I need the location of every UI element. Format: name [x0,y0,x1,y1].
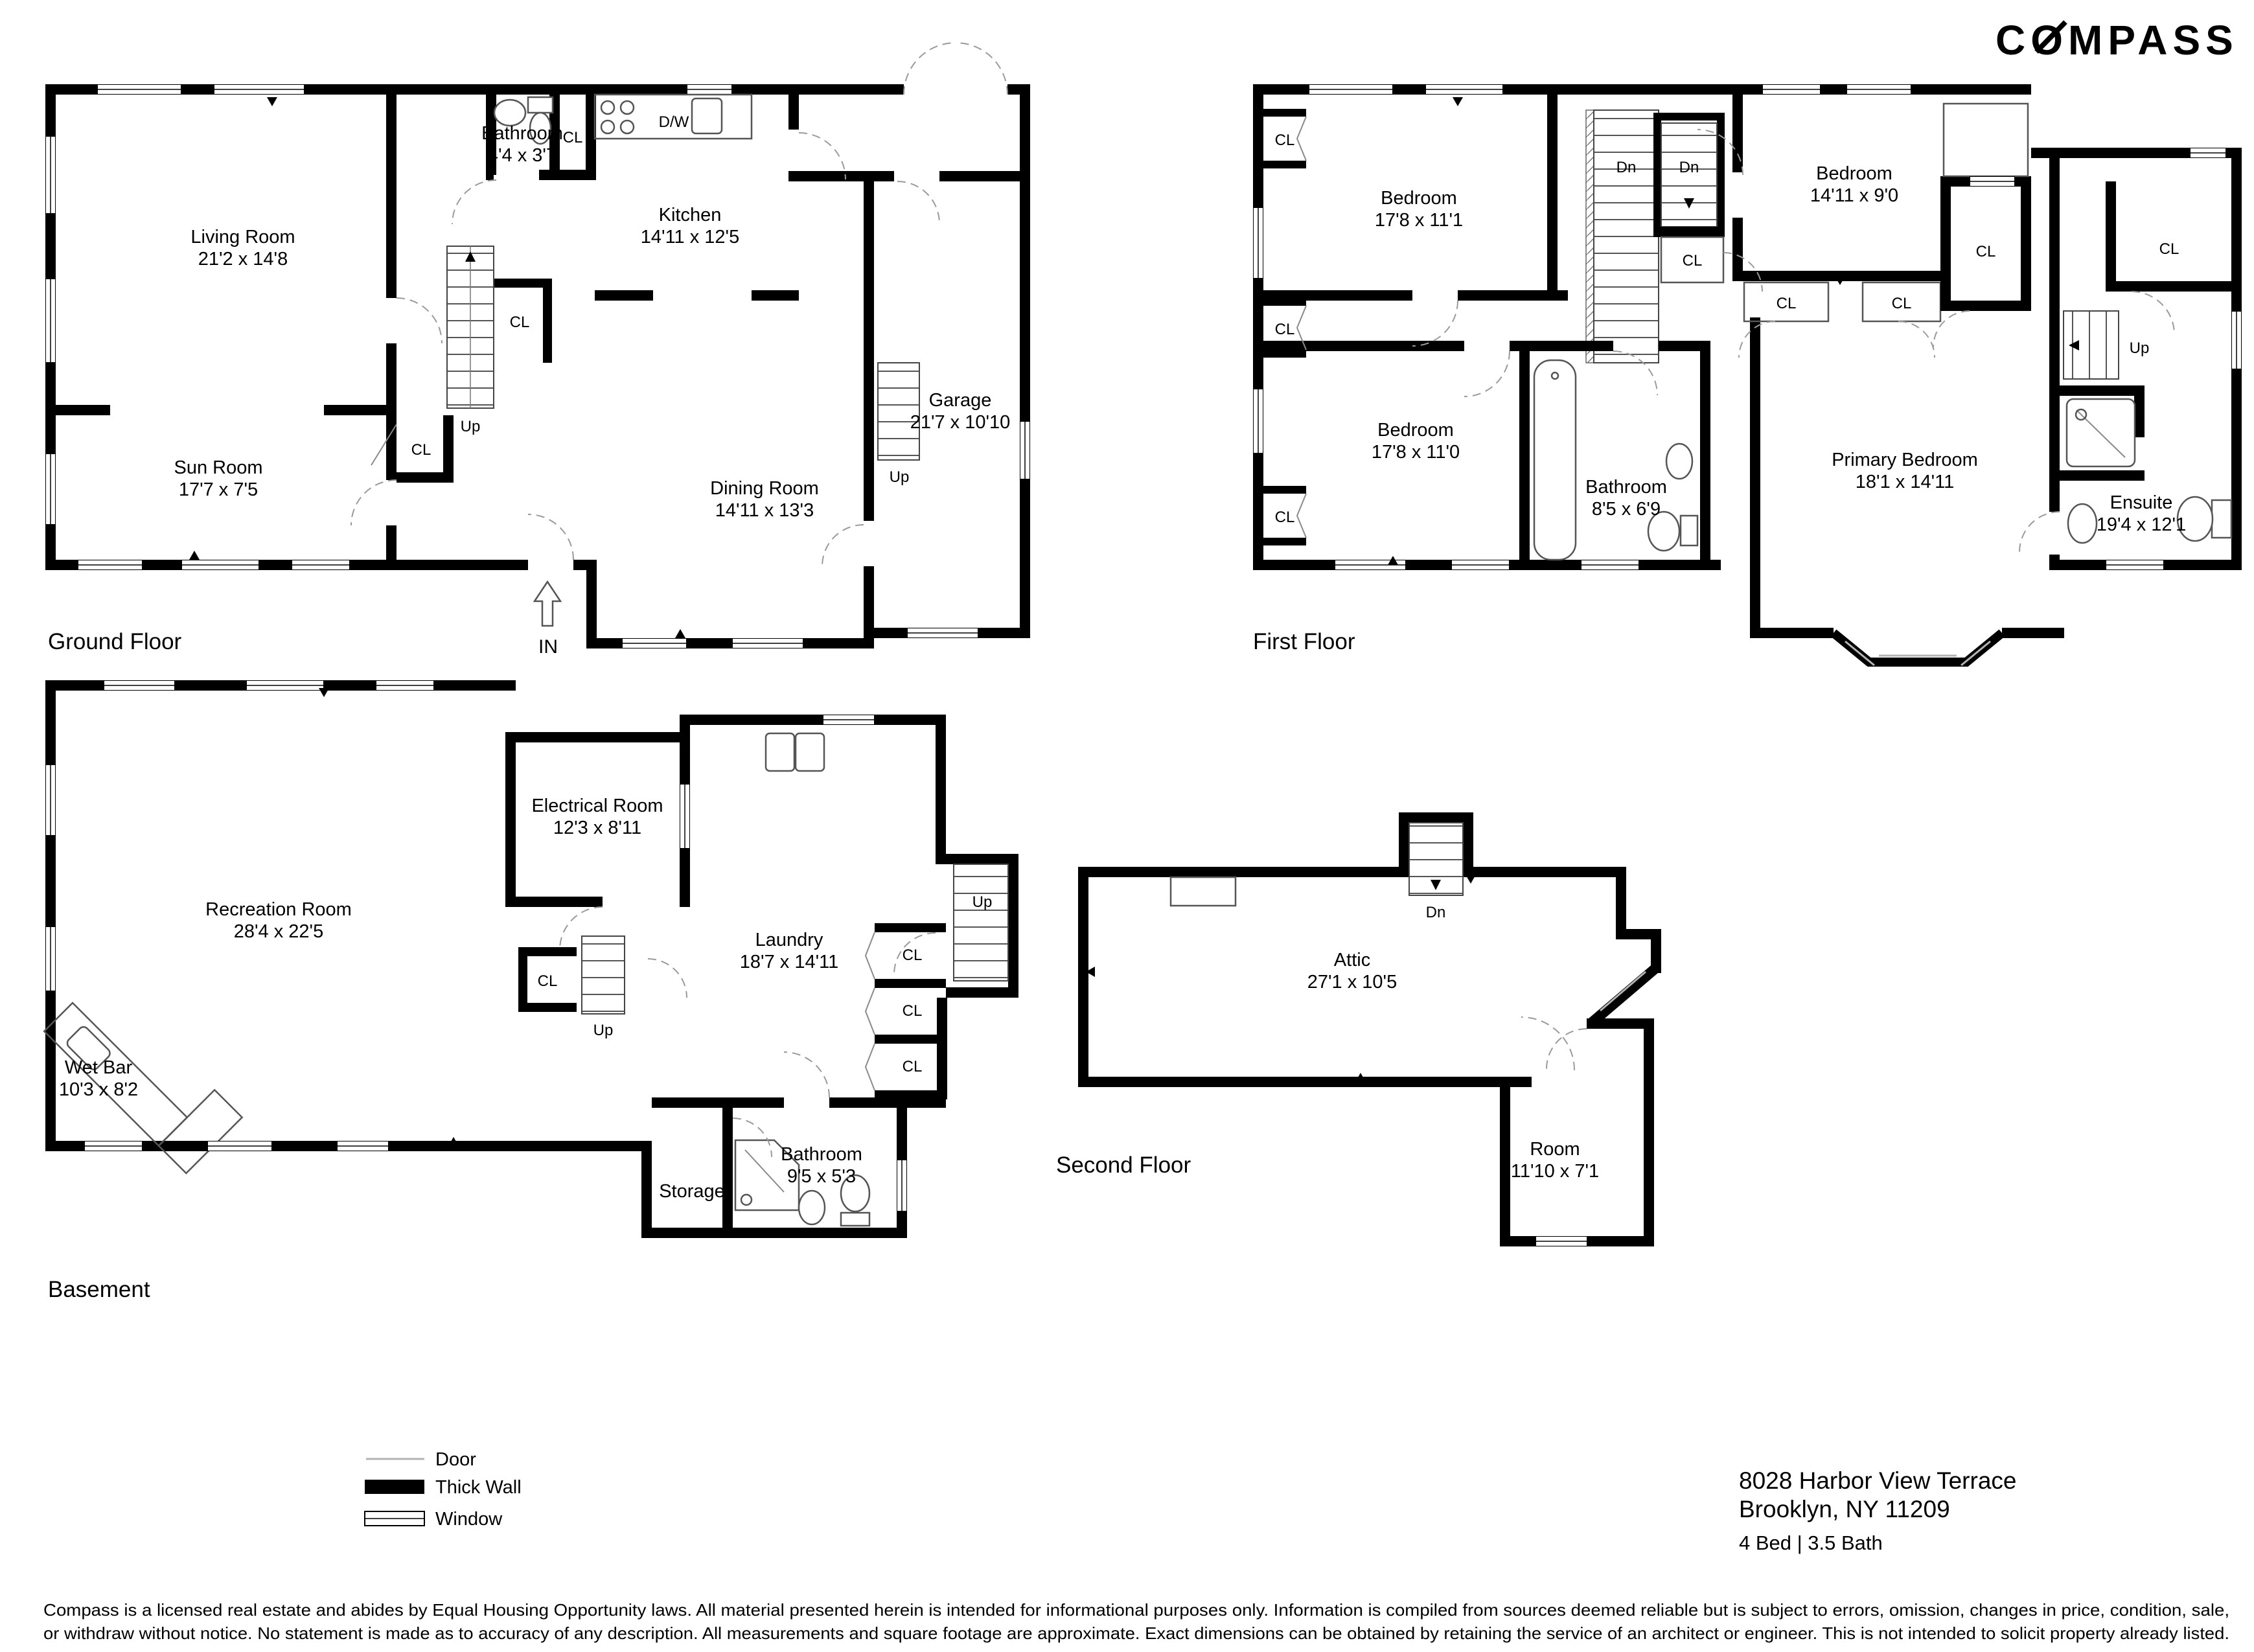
ground-floor-plan: Living Room 21'2 x 14'8 Sun Room 17'7 x … [45,43,1030,658]
window [1253,389,1263,453]
wall [386,84,397,298]
wall [586,570,597,648]
window [337,1141,389,1151]
wall [1539,341,1613,351]
entry-in-label: IN [538,636,558,658]
room-dims: 12'3 x 8'11 [553,818,641,838]
direction-arrow [189,551,200,560]
bay-window-wall [1834,633,2002,662]
bay-window [1961,641,1990,665]
wall [1940,181,1951,311]
floor-plan-page: COMPASS [0,0,2254,1652]
laundry-sink-icon [766,733,794,771]
closet-label: CL [1275,321,1295,338]
toilet-tank-icon [2212,500,2231,538]
door-arc [528,514,573,560]
window [680,784,690,849]
wall [573,560,597,570]
window [78,560,143,570]
wall [752,290,799,301]
window [97,84,181,95]
direction-arrow [1466,875,1476,884]
room-name: Room [1530,1139,1580,1160]
wall [1750,317,1760,638]
first-floor-plan: Bedroom 17'8 x 11'1 Bedroom 14'11 x 9'0 … [1253,84,2242,665]
dormer-window-bay [1171,877,1236,906]
door-arc [1412,301,1458,346]
wall [518,947,527,1012]
wall [1659,341,1710,351]
wall [680,715,946,725]
window [823,715,875,725]
wall [864,566,874,638]
stairs-down-label: Dn [1616,159,1637,176]
wall [875,979,946,988]
closet-label: CL [1683,252,1703,270]
wall [1547,95,1558,301]
window [897,1160,907,1211]
chimney-bay [1944,104,2028,176]
wall [505,897,603,907]
compass-logo: COMPASS [1995,17,2238,63]
room-dims: 11'10 x 7'1 [1511,1161,1599,1182]
room-dims: 17'8 x 11'1 [1375,210,1463,231]
wall [1263,538,1306,545]
room-name: Sun Room [174,457,262,478]
window [45,926,56,991]
floor-title: First Floor [1253,629,1355,654]
wall [937,998,947,1099]
address-line2: Brooklyn, NY 11209 [1739,1496,1950,1522]
room-name: Primary Bedroom [1832,450,1978,470]
room-dims: 17'7 x 7'5 [179,479,258,500]
room-dims: 8'5 x 6'9 [1592,499,1661,520]
window [207,1141,272,1151]
window [1846,84,1911,95]
room-dims: 10'3 x 8'2 [59,1079,138,1100]
room-dims: 28'4 x 22'5 [234,921,323,942]
stove-burner-icon [621,120,634,133]
wall [946,987,1018,998]
closet-door-leaf [866,1044,875,1090]
room-dims: 14'11 x 13'3 [715,500,814,521]
window [2190,148,2226,158]
floor-title: Second Floor [1056,1153,1191,1178]
window [1535,1236,1587,1246]
door-arc [1933,311,1970,347]
beds-baths: 4 Bed | 3.5 Bath [1739,1532,1883,1554]
wall [1519,351,1530,570]
wall [1587,1018,1654,1029]
wall [1263,486,1306,494]
window [1425,84,1503,95]
door-arc [1547,1029,1587,1069]
wall [875,923,946,932]
room-name: Dining Room [710,478,819,499]
disclaimer-line1: Compass is a licensed real estate and ab… [43,1600,2229,1620]
wall [1750,628,1834,638]
room-name: Attic [1334,950,1370,970]
window [214,84,305,95]
legend-door-label: Door [435,1449,476,1470]
stairs-up-label: Up [593,1022,614,1039]
room-dims: 19'4 x 12'1 [2097,514,2186,535]
room-name: Electrical Room [531,796,663,816]
closet-door-leaf [1297,117,1306,161]
window [1020,421,1030,479]
window [2231,311,2242,369]
room-name: Bathroom [781,1144,862,1165]
wall [1653,113,1725,120]
stairs-up-label: Up [890,468,910,486]
window [907,628,978,638]
door-arc [822,525,864,566]
door-arc [2132,292,2174,334]
kitchen-sink-icon [692,98,722,133]
wall [1510,341,1539,351]
stairs-up-label: Up [2130,339,2150,357]
wall [864,171,874,521]
wall [1020,95,1030,638]
floor-title: Basement [48,1277,150,1302]
room-name: Kitchen [659,205,722,225]
wall [1700,351,1710,570]
room-dims: 21'7 x 10'10 [910,412,1011,433]
window [732,638,803,648]
legend-window-label: Window [435,1509,503,1530]
wall [397,472,454,483]
window [622,638,687,648]
closet-label: CL [510,314,530,331]
wall [1653,227,1725,237]
stairs-up-label: Up [972,893,993,911]
laundry-sink-icon [796,733,824,771]
wall [1717,118,1725,232]
entry-arrow-icon [535,582,560,626]
wall [1263,161,1306,168]
wall [722,1108,733,1238]
wall [543,279,552,363]
door-arc [351,480,397,525]
room-dims: 18'7 x 14'11 [740,952,838,972]
staircase [582,936,625,1014]
wall [652,1097,784,1108]
basement-plan: Recreation Room 28'4 x 22'5 Electrical R… [44,680,1018,1302]
legend-thick-wall-label: Thick Wall [435,1477,522,1498]
wall [1732,218,1743,281]
floor-plan-canvas: COMPASS [0,0,2254,1652]
wall [2049,555,2060,570]
disclaimer-line2: or withdraw without notice. No statement… [43,1623,2229,1643]
window [1762,84,1821,95]
wall [1732,95,1743,172]
wall [641,1228,907,1238]
wall [1263,341,1464,351]
closet-label: CL [1777,295,1797,312]
stairs-down-label: Dn [1426,904,1446,921]
closet-label: CL [538,972,558,990]
room-name: Bedroom [1377,420,1454,441]
stairs-down-label: Dn [1679,159,1699,176]
room-name: Bedroom [1381,188,1457,209]
room-dims: 4'4 x 3'7 [488,145,557,166]
entry-door-arc [904,43,956,95]
wall [788,171,894,181]
window [292,560,350,570]
window [45,764,56,836]
wall [1007,84,1030,95]
floor-title: Ground Floor [48,629,182,654]
room-name: Recreation Room [205,899,352,920]
logo-wordmark: COMPASS [1995,17,2238,63]
window [687,84,732,95]
door-arc [2019,512,2060,552]
stair-rail [1586,110,1594,363]
window [1309,84,1393,95]
room-name: Laundry [755,930,823,950]
wall [1463,812,1473,867]
room-dims: 21'2 x 14'8 [198,249,288,270]
stove-burner-icon [621,101,634,114]
diagonal-wall [1591,968,1656,1024]
wall [324,405,397,415]
legend: Door Thick Wall Window [365,1449,522,1530]
address-line1: 8028 Harbor View Terrace [1739,1467,2016,1494]
window [45,136,56,214]
wall [875,1035,946,1044]
wall [788,84,799,130]
stairs-up-label: Up [461,418,481,435]
wall [1500,1087,1510,1246]
window [1451,560,1510,570]
wall [936,854,1018,864]
room-dims: 27'1 x 10'5 [1307,972,1397,992]
direction-arrow [319,688,329,697]
window [1970,176,2015,187]
wall [1399,812,1473,823]
window [2106,560,2164,570]
wall [2021,181,2031,311]
wall [939,171,1030,181]
wall [1644,1029,1654,1246]
direction-arrow [675,629,685,638]
staircase [878,363,919,460]
wall [2049,158,2060,512]
closet-label: CL [903,1002,923,1020]
staircase [954,864,1008,981]
wall [1078,1077,1532,1087]
closet-label: CL [1275,509,1295,526]
bay-window [1845,641,1874,665]
wall [45,680,56,1151]
wall [1263,109,1306,117]
window [246,680,324,691]
wall [2002,628,2064,638]
closet-label: CL [1892,295,1912,312]
wall [1263,350,1306,358]
room-dims: 9'5 x 5'3 [787,1166,856,1187]
wall [505,732,516,907]
room-name: Bedroom [1816,163,1892,184]
wall [1008,854,1018,998]
wall [505,732,690,742]
stove-burner-icon [601,101,614,114]
wall [486,170,494,180]
toilet-tank-icon [1681,516,1697,545]
closet-door-leaf [866,932,875,979]
toilet-tank-icon [841,1213,869,1226]
door-arc [452,180,496,224]
wall [2134,385,2145,437]
wall [936,725,946,864]
closet-door-leaf [1297,494,1306,538]
door-arc [897,181,939,224]
wall [1940,301,2031,311]
wall [1078,867,1626,877]
wall [386,343,397,415]
door-arc [1898,321,1935,358]
sink-icon [494,100,525,126]
closet-label: CL [903,946,923,964]
window [45,279,56,363]
bathtub-icon [1534,360,1576,560]
wall [1253,84,1263,570]
wall [1263,298,1306,306]
window [84,1141,143,1151]
window [104,680,175,691]
room-name: Ensuite [2110,492,2173,513]
wall [1653,118,1661,232]
entry-door-arc [956,43,1007,95]
closet-label: CL [1275,132,1295,149]
door-arc [1521,1017,1574,1070]
sink-icon [1666,444,1692,479]
room-dims: 17'8 x 11'0 [1372,442,1460,463]
room-name: Bathroom [481,123,563,144]
toilet-tank-icon [528,97,553,113]
door-arc [1464,351,1510,396]
disclaimer: Compass is a licensed real estate and ab… [43,1600,2229,1643]
wall [386,415,397,480]
closet-label: CL [563,129,583,146]
closet-label: CL [2159,240,2179,258]
room-name: Wet Bar [65,1057,133,1078]
room-dims: 14'11 x 9'0 [1810,185,1898,206]
stove-burner-icon [601,120,614,133]
direction-arrow [1453,97,1463,106]
wall [2060,385,2145,396]
room-dims: 14'11 x 12'5 [641,227,739,247]
window [181,560,259,570]
closet-label: CL [1976,243,1996,260]
closet-door-leaf [866,988,875,1035]
closet-label: CL [411,441,431,459]
wall [1399,812,1409,867]
wall [595,290,653,301]
wall [45,405,110,415]
diagonal-window [1600,972,1646,1011]
dishwasher-label: D/W [659,113,689,131]
legend-thick-wall-symbol [365,1480,424,1494]
listing-info: 8028 Harbor View Terrace Brooklyn, NY 11… [1739,1467,2016,1554]
wall [386,560,528,570]
closet-label: CL [903,1058,923,1075]
room-name: Storage [659,1181,725,1202]
door-arc [784,1052,829,1097]
room-name: Living Room [190,227,295,247]
room-dims: 18'1 x 14'11 [1856,472,1954,492]
staircase [1594,110,1659,363]
window [1581,560,1639,570]
wall [1078,867,1088,1087]
wall [641,1141,652,1238]
second-floor-plan: Attic 27'1 x 10'5 Room 11'10 x 7'1 Dn Se… [1056,812,1661,1246]
window [1253,207,1263,279]
room-name: Garage [929,390,992,411]
wall [2060,470,2145,481]
wall [2106,281,2231,292]
sink-icon [799,1191,825,1224]
sink-icon [2068,504,2097,543]
wall [829,1097,946,1108]
door-arc [648,959,687,998]
wall [1616,929,1661,939]
window [376,680,434,691]
room-name: Bathroom [1585,477,1667,498]
wall [2106,181,2116,285]
door-arc [397,298,442,343]
direction-arrow [267,97,277,106]
window [45,453,56,525]
